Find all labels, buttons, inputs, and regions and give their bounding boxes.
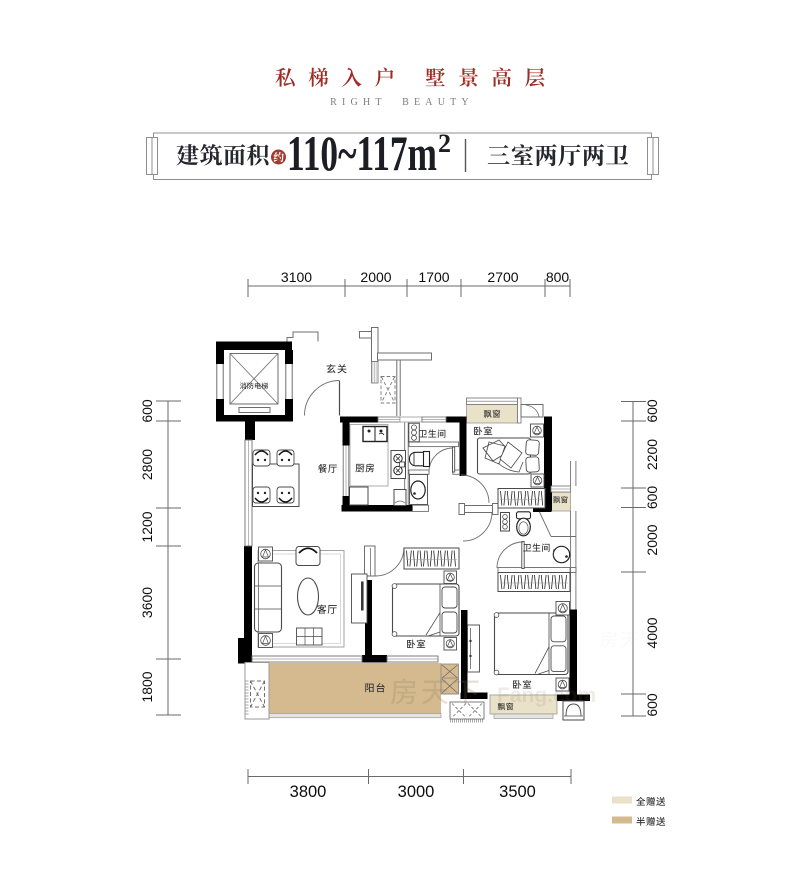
svg-text:3500: 3500 bbox=[499, 783, 536, 801]
svg-text:600: 600 bbox=[139, 399, 155, 423]
svg-text:600: 600 bbox=[644, 399, 660, 423]
svg-text:2700: 2700 bbox=[487, 269, 518, 285]
svg-text:3600: 3600 bbox=[139, 587, 155, 618]
svg-text:3100: 3100 bbox=[281, 269, 312, 285]
svg-text:600: 600 bbox=[644, 693, 660, 717]
svg-text:1200: 1200 bbox=[139, 511, 155, 542]
svg-text:1800: 1800 bbox=[139, 671, 155, 702]
svg-text:600: 600 bbox=[644, 486, 660, 510]
svg-text:2: 2 bbox=[438, 129, 451, 158]
svg-text:3800: 3800 bbox=[290, 783, 327, 801]
svg-text:1700: 1700 bbox=[418, 269, 449, 285]
svg-text:2000: 2000 bbox=[644, 524, 660, 555]
svg-text:3000: 3000 bbox=[398, 783, 435, 801]
svg-text:Fang.com: Fang.com bbox=[497, 684, 596, 707]
svg-text:2800: 2800 bbox=[139, 449, 155, 480]
svg-text:110~117m: 110~117m bbox=[287, 125, 437, 181]
svg-text:2200: 2200 bbox=[644, 439, 660, 470]
svg-text:2000: 2000 bbox=[360, 269, 391, 285]
svg-text:RIGHT BEAUTY: RIGHT BEAUTY bbox=[330, 97, 474, 108]
svg-text:800: 800 bbox=[546, 269, 570, 285]
